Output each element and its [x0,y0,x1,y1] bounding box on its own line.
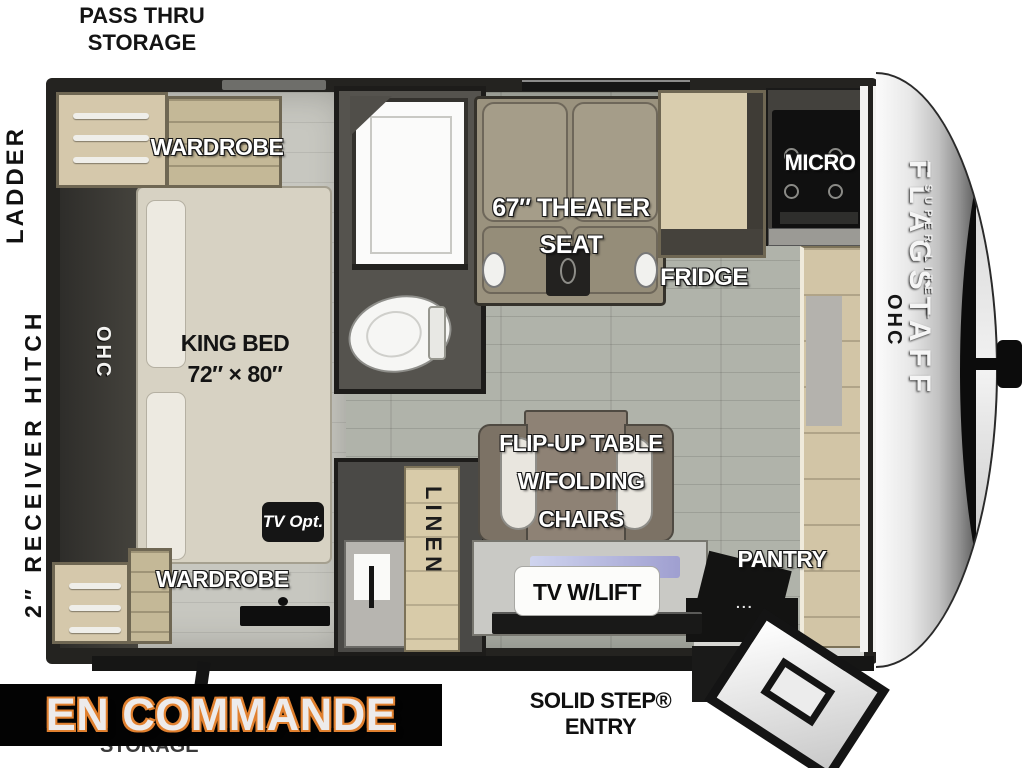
pillow [146,392,186,560]
front-ohc-label: OHC [882,294,905,347]
pantry-label: PANTRY [733,546,831,573]
wardrobe-bottom-label: WARDROBE [156,566,280,593]
shower-pan [370,116,452,254]
front-cap: FLAGSTAFF — SUPER LITE — [876,72,998,668]
pantry-handle: ... [736,600,770,606]
wardrobe-top-label: WARDROBE [150,134,284,161]
king-bed-line2: 72″ × 80″ [150,359,320,390]
fridge-label: FRIDGE [648,264,760,292]
king-bed-label: KING BED 72″ × 80″ [150,328,320,390]
shower-glass [352,264,468,270]
toilet-tank [428,306,446,360]
burner [784,184,799,199]
shelf [73,113,149,119]
fridge-base [661,229,763,255]
shower-corner-cut [350,96,392,136]
theater-seat-label: 67″ THEATER SEAT [478,190,664,264]
microwave-label: MICRO [768,150,872,176]
wardrobe-cabinet-bottom [128,548,172,644]
receiver-hitch-label: 2″ RECEIVER HITCH [20,309,47,618]
theater-label-line2: SEAT [478,227,664,264]
table-label-line3: CHAIRS [486,500,676,538]
kitchen-sink [768,228,868,246]
tv-optional-badge: TV Opt. [262,502,324,542]
bedroom-window [222,80,326,90]
rv-floorplan-image: PASS THRU STORAGE LADDER 2″ RECEIVER HIT… [0,0,1024,768]
shelf [69,605,121,611]
solid-step-entry-label: SOLID STEP® ENTRY [508,688,693,740]
linen-label: LINEN [420,486,446,577]
pass-thru-storage-label: PASS THRU STORAGE [58,2,226,56]
rear-ohc-label: OHC [91,326,114,379]
burner [828,184,843,199]
solid-step-tread [760,657,835,726]
status-banner: EN COMMANDE [0,684,442,746]
table-label-line1: FLIP-UP TABLE [486,424,676,462]
shelf [73,157,149,163]
brand-subtitle: — SUPER LITE — [922,160,934,323]
shelf [73,135,149,141]
wardrobe-shelves-bottom [52,562,130,644]
hall-cabinet-item [369,566,374,608]
pass-thru-line2: STORAGE [58,29,226,56]
table-label-line2: W/FOLDING [486,462,676,500]
pass-thru-line1: PASS THRU [58,2,226,29]
shelf [69,627,121,633]
tv-lift-label: TV W/LIFT [514,566,660,616]
cooktop-controls [780,212,858,224]
king-bed-line1: KING BED [150,328,320,359]
status-banner-text: EN COMMANDE [0,684,442,746]
toilet-bowl [362,306,426,363]
bedroom-tv-mount [278,597,288,606]
bedroom-tv [240,606,330,626]
fridge-cabinet [658,90,766,258]
ladder-label: LADDER [2,126,30,244]
flip-up-table-label: FLIP-UP TABLE W/FOLDING CHAIRS [486,424,676,538]
tongue-jack [997,340,1022,388]
right-wall-counter-panel [806,296,842,426]
shelf [69,583,121,589]
theater-label-line1: 67″ THEATER [478,190,664,227]
